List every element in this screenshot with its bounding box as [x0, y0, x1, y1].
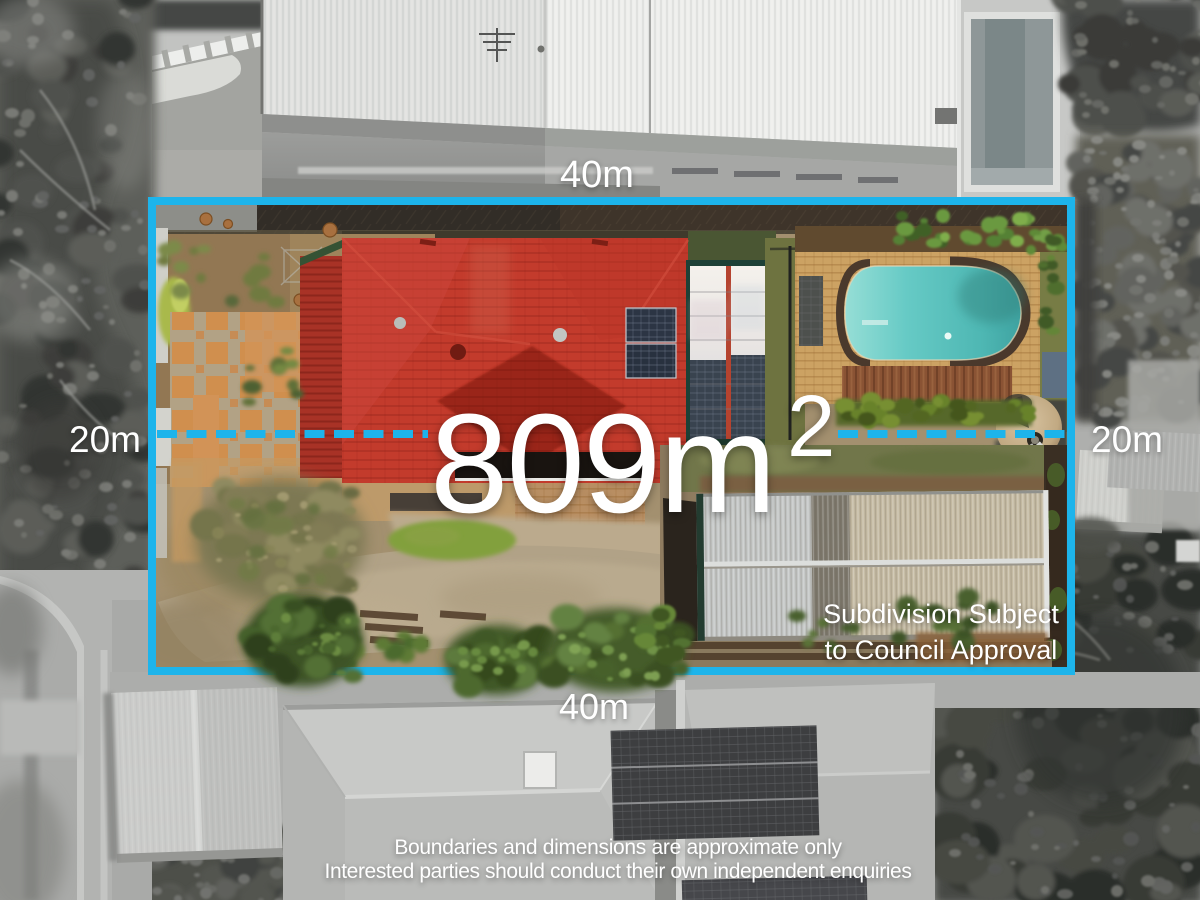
svg-text:20m: 20m [69, 419, 141, 460]
svg-text:809m: 809m [430, 384, 775, 542]
svg-text:2: 2 [787, 378, 835, 475]
svg-text:Interested parties should cond: Interested parties should conduct their … [325, 860, 912, 883]
svg-text:to Council Approval: to Council Approval [825, 635, 1058, 665]
svg-text:40m: 40m [559, 686, 629, 727]
svg-text:40m: 40m [560, 154, 634, 196]
svg-text:Boundaries and dimensions are: Boundaries and dimensions are approximat… [394, 836, 842, 859]
svg-text:Subdivision Subject: Subdivision Subject [823, 599, 1059, 629]
svg-text:20m: 20m [1091, 419, 1163, 460]
